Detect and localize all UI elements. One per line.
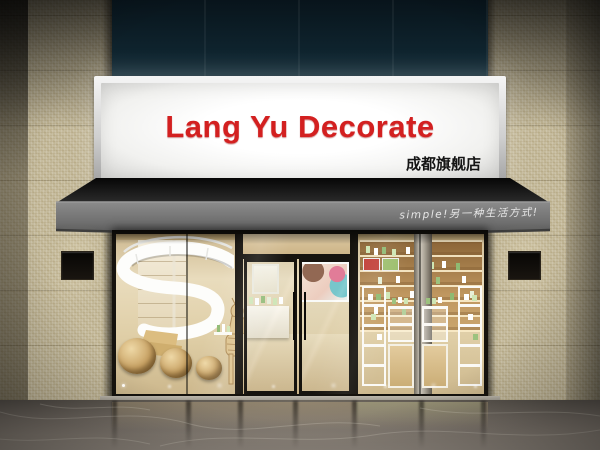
- entrance-door-right: [299, 259, 352, 394]
- display-table: [422, 306, 448, 342]
- wall-sconce-left: [61, 251, 94, 280]
- mini-poster: [382, 258, 399, 271]
- shop-interior: [116, 234, 484, 394]
- white-etagere-shelf: [458, 286, 482, 386]
- sign-title: Lang Yu Decorate: [101, 109, 499, 145]
- entrance-door-left: [244, 259, 297, 394]
- display-table-cabinet: [388, 344, 414, 388]
- etagere-items: [464, 294, 469, 300]
- rattan-ball-lamp: [118, 338, 156, 374]
- upper-facade-glass: [112, 0, 488, 84]
- table-products: [392, 298, 396, 304]
- display-table: [388, 306, 414, 342]
- mini-poster: [363, 258, 380, 271]
- door-handle: [304, 292, 306, 340]
- storefront-frame: [112, 230, 488, 400]
- etagere-items: [368, 294, 373, 300]
- shelf-products: [366, 246, 370, 253]
- glass-seam: [186, 234, 188, 394]
- display-table-cabinet: [422, 344, 448, 388]
- sign-subtitle: 成都旗舰店: [406, 153, 481, 174]
- window-mullion: [235, 234, 243, 394]
- door-handle: [293, 292, 295, 340]
- glass-seam: [419, 234, 421, 394]
- awning-top-slope: [56, 178, 550, 203]
- signboard-lightbox: Lang Yu Decorate 成都旗舰店: [101, 83, 499, 181]
- marble-veins: [0, 400, 600, 450]
- awning-shadow: [112, 230, 488, 244]
- white-etagere-shelf: [362, 286, 386, 386]
- table-products: [426, 298, 430, 304]
- wall-sconce-right: [508, 251, 541, 280]
- storefront-signboard: Lang Yu Decorate 成都旗舰店: [94, 76, 506, 188]
- window-mullion: [350, 234, 358, 394]
- storefront-scene: Lang Yu Decorate 成都旗舰店 simple!另一种生活方式!: [0, 0, 600, 450]
- floor-spotlights: [122, 384, 125, 387]
